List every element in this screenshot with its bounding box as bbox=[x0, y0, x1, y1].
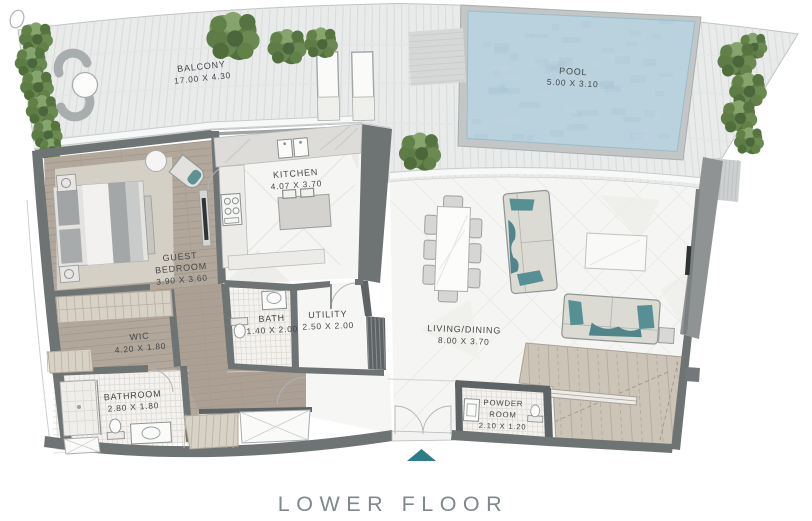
svg-text:2.10 X 1.20: 2.10 X 1.20 bbox=[479, 421, 527, 432]
svg-text:BATH: BATH bbox=[258, 313, 285, 324]
svg-text:8.00 X 3.70: 8.00 X 3.70 bbox=[438, 335, 490, 347]
svg-text:POWDER: POWDER bbox=[483, 398, 523, 408]
svg-text:UTILITY: UTILITY bbox=[308, 309, 347, 320]
svg-text:2.50 X 2.00: 2.50 X 2.00 bbox=[302, 320, 354, 332]
svg-text:ROOM: ROOM bbox=[489, 410, 517, 420]
svg-text:LOWER FLOOR: LOWER FLOOR bbox=[278, 492, 508, 516]
svg-text:POOL: POOL bbox=[559, 66, 588, 77]
svg-text:WIC: WIC bbox=[129, 331, 150, 343]
